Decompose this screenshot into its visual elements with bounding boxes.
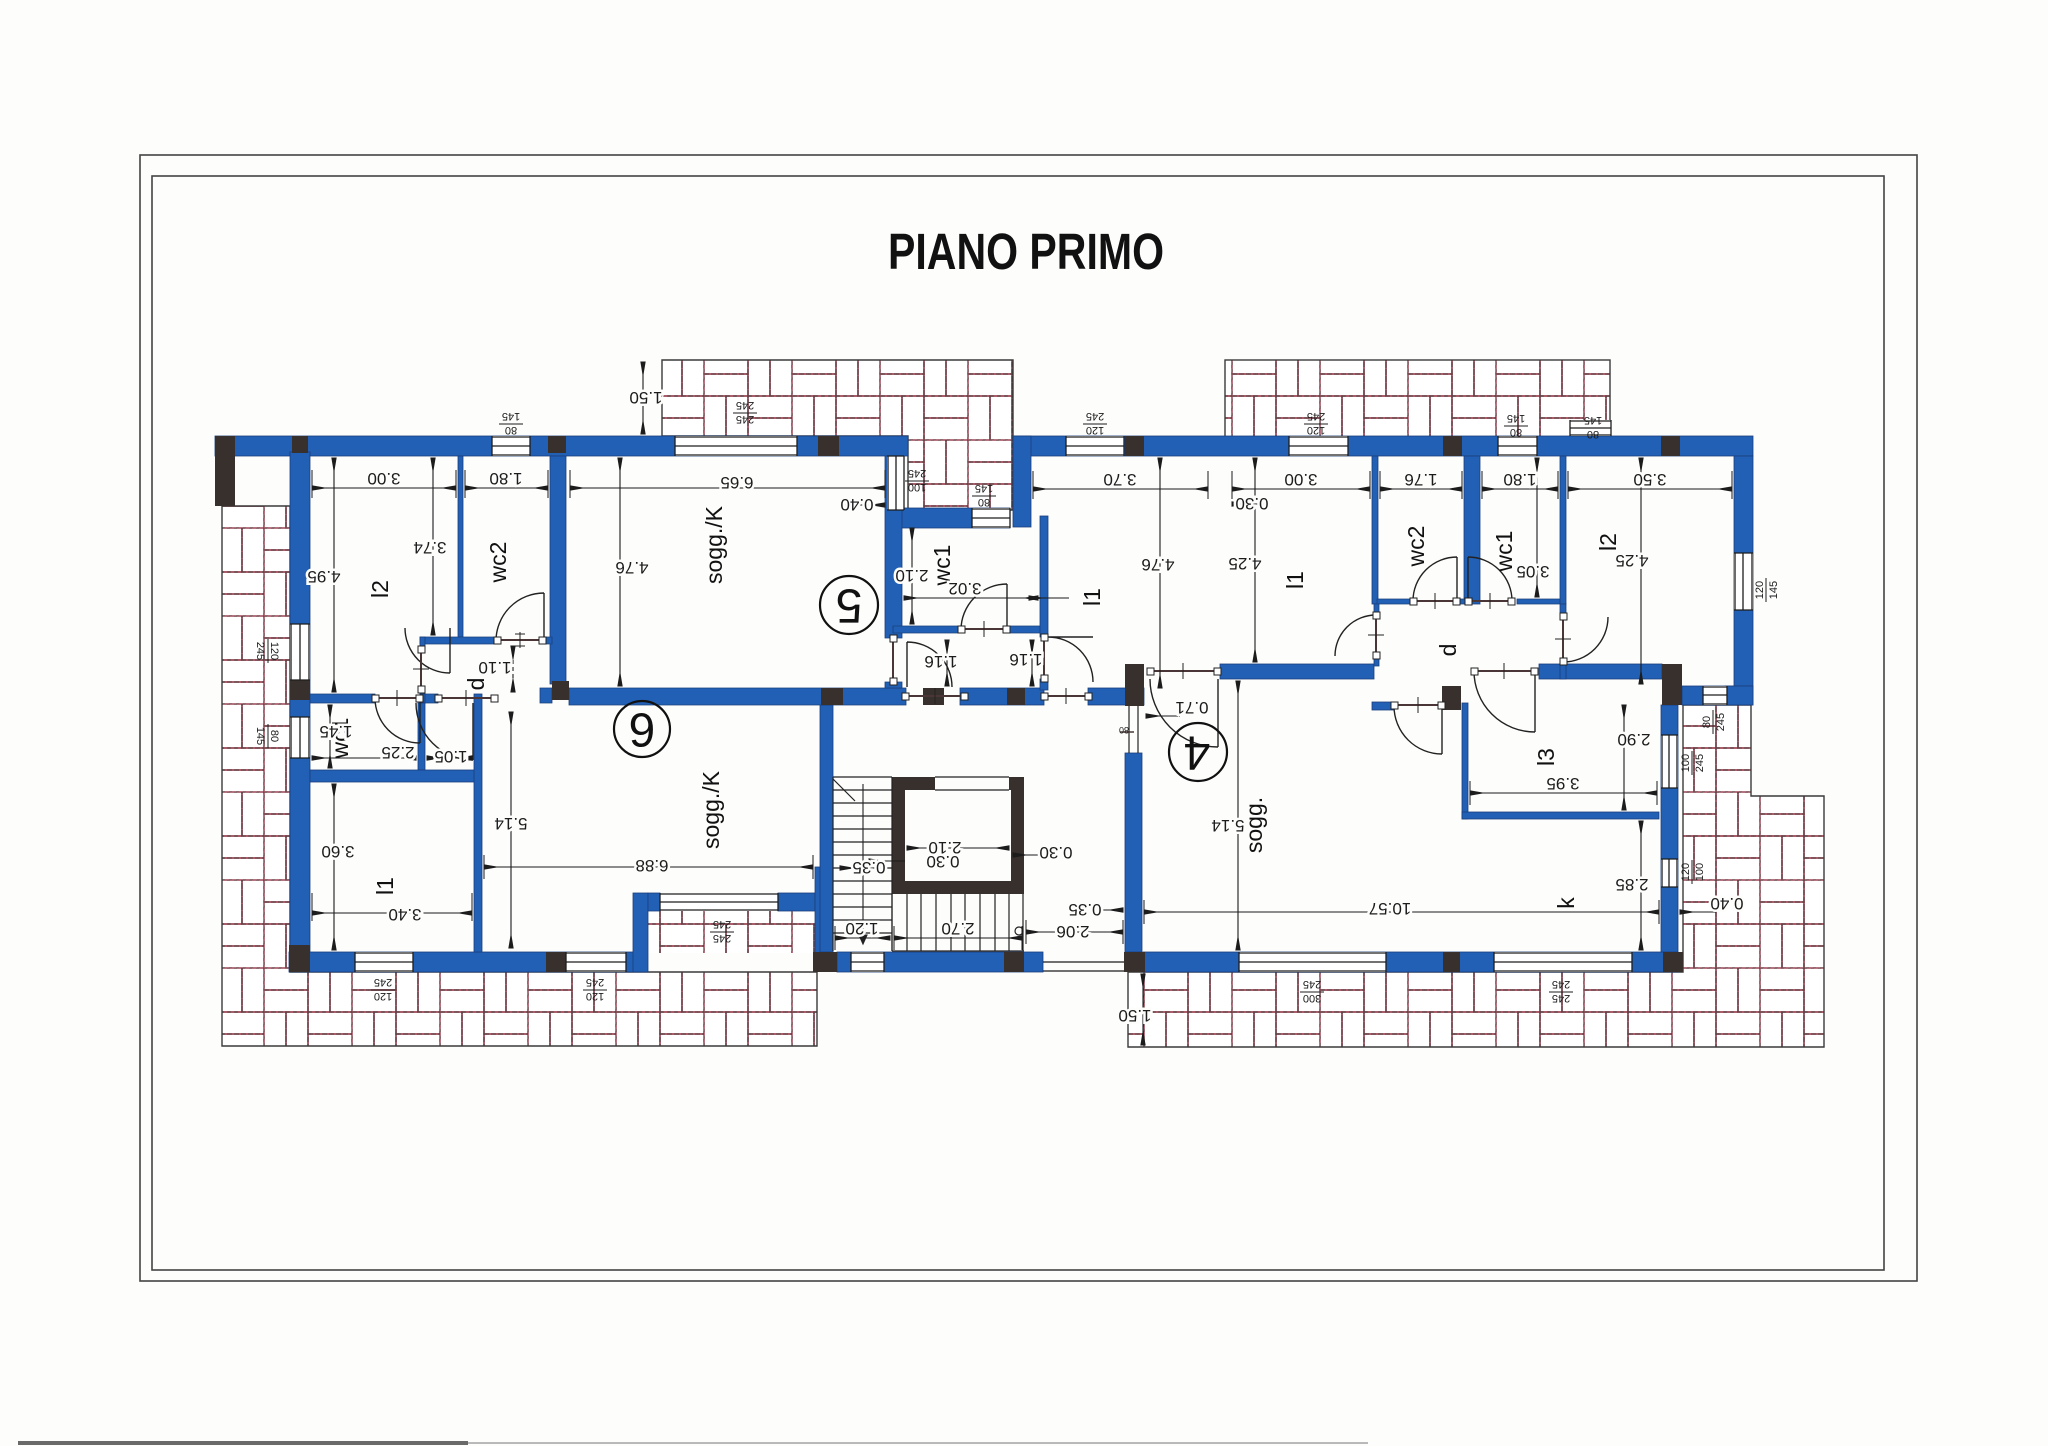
svg-text:wc2: wc2 (1403, 526, 1429, 568)
svg-text:300: 300 (1303, 992, 1321, 1004)
svg-text:1.10: 1.10 (478, 658, 511, 677)
svg-text:245: 245 (586, 976, 604, 988)
svg-text:80: 80 (1701, 716, 1713, 728)
svg-text:l3: l3 (1533, 748, 1559, 766)
svg-text:sogg.: sogg. (1241, 797, 1267, 853)
svg-text:3.70: 3.70 (1103, 470, 1136, 489)
svg-text:3.74: 3.74 (413, 538, 446, 557)
svg-text:0.30: 0.30 (1039, 843, 1072, 862)
svg-text:2.90: 2.90 (1617, 730, 1650, 749)
svg-text:2.25: 2.25 (381, 743, 414, 762)
svg-text:10.57: 10.57 (1369, 899, 1412, 918)
svg-text:d: d (1435, 644, 1461, 657)
svg-text:245: 245 (374, 976, 392, 988)
svg-text:100: 100 (908, 481, 926, 493)
svg-text:1.50: 1.50 (1118, 1006, 1151, 1025)
svg-text:245: 245 (254, 642, 266, 660)
svg-text:sogg./K: sogg./K (698, 770, 724, 849)
svg-text:245: 245 (1307, 410, 1325, 422)
svg-text:80: 80 (1587, 428, 1599, 440)
svg-text:0.35: 0.35 (1068, 900, 1101, 919)
svg-text:245: 245 (1552, 978, 1570, 990)
svg-text:145: 145 (1584, 414, 1602, 426)
svg-text:2.06: 2.06 (1056, 922, 1089, 941)
svg-text:1.80: 1.80 (489, 469, 522, 488)
svg-text:6.88: 6.88 (635, 856, 668, 875)
svg-text:1.76: 1.76 (1404, 470, 1437, 489)
svg-text:80: 80 (978, 496, 990, 508)
svg-text:l2: l2 (1595, 533, 1621, 551)
svg-text:4.76: 4.76 (1141, 555, 1174, 574)
svg-text:d: d (463, 678, 489, 691)
svg-text:0.35: 0.35 (852, 858, 885, 877)
svg-text:1.16: 1.16 (924, 652, 957, 671)
svg-text:0.30: 0.30 (926, 852, 959, 871)
svg-text:4.25: 4.25 (1615, 551, 1648, 570)
svg-text:2.70: 2.70 (941, 919, 974, 938)
svg-text:l1: l1 (1079, 588, 1105, 606)
svg-text:sogg./K: sogg./K (701, 505, 727, 584)
svg-text:145: 145 (1768, 581, 1780, 599)
svg-text:120: 120 (268, 642, 280, 660)
svg-text:wc1: wc1 (1491, 531, 1517, 573)
svg-text:145: 145 (502, 410, 520, 422)
svg-text:245: 245 (736, 413, 754, 425)
svg-text:245: 245 (713, 932, 731, 944)
svg-text:3.40: 3.40 (388, 905, 421, 924)
svg-text:245: 245 (908, 467, 926, 479)
svg-text:120: 120 (1086, 424, 1104, 436)
svg-text:120: 120 (1680, 863, 1692, 881)
svg-text:3.00: 3.00 (367, 469, 400, 488)
svg-text:3.00: 3.00 (1284, 470, 1317, 489)
svg-text:100: 100 (1694, 863, 1706, 881)
svg-text:0.71: 0.71 (1175, 698, 1208, 717)
svg-text:5.14: 5.14 (494, 814, 527, 833)
svg-text:0.40: 0.40 (840, 495, 873, 514)
svg-text:4.95: 4.95 (307, 567, 340, 586)
svg-text:245: 245 (713, 918, 731, 930)
svg-text:145: 145 (975, 482, 993, 494)
svg-text:l1: l1 (1282, 571, 1308, 589)
svg-text:l1: l1 (372, 877, 398, 895)
svg-text:6.65: 6.65 (720, 473, 753, 492)
svg-text:PIANO PRIMO: PIANO PRIMO (888, 223, 1164, 280)
svg-text:1.50: 1.50 (629, 388, 662, 407)
svg-text:5: 5 (836, 579, 863, 632)
svg-text:2.10: 2.10 (895, 566, 928, 585)
svg-text:1.16: 1.16 (1009, 650, 1042, 669)
svg-text:4.76: 4.76 (615, 558, 648, 577)
svg-text:120: 120 (586, 990, 604, 1002)
svg-text:0.30: 0.30 (1235, 494, 1268, 513)
svg-text:2.85: 2.85 (1615, 875, 1648, 894)
svg-text:3.95: 3.95 (1546, 774, 1579, 793)
svg-text:245: 245 (1715, 713, 1727, 731)
svg-text:3.60: 3.60 (321, 842, 354, 861)
svg-text:k: k (1553, 897, 1579, 909)
svg-text:245: 245 (1303, 978, 1321, 990)
svg-text:3.05: 3.05 (1516, 562, 1549, 581)
svg-text:245: 245 (1086, 410, 1104, 422)
svg-text:4.25: 4.25 (1228, 554, 1261, 573)
svg-text:4: 4 (1184, 726, 1211, 779)
svg-text:245: 245 (1694, 754, 1706, 772)
svg-text:3.50: 3.50 (1633, 470, 1666, 489)
svg-text:6: 6 (629, 703, 656, 756)
svg-text:245: 245 (736, 399, 754, 411)
svg-text:100: 100 (1680, 754, 1692, 772)
svg-text:1.45: 1.45 (319, 722, 352, 741)
svg-text:145: 145 (1507, 412, 1525, 424)
svg-text:120: 120 (1307, 424, 1325, 436)
svg-text:l2: l2 (367, 580, 393, 598)
svg-text:1.20: 1.20 (845, 919, 878, 938)
svg-text:1.05: 1.05 (434, 747, 467, 766)
svg-text:5.14: 5.14 (1211, 816, 1244, 835)
svg-text:wc2: wc2 (485, 542, 511, 584)
svg-text:80: 80 (1119, 725, 1129, 735)
svg-text:80: 80 (1510, 426, 1522, 438)
svg-text:1.80: 1.80 (1503, 470, 1536, 489)
svg-text:245: 245 (1552, 992, 1570, 1004)
svg-text:0.40: 0.40 (1710, 894, 1743, 913)
svg-text:3.02: 3.02 (948, 579, 981, 598)
svg-text:120: 120 (1754, 581, 1766, 599)
svg-text:80: 80 (505, 424, 517, 436)
svg-text:120: 120 (374, 990, 392, 1002)
svg-text:80: 80 (268, 730, 280, 742)
svg-text:145: 145 (254, 727, 266, 745)
